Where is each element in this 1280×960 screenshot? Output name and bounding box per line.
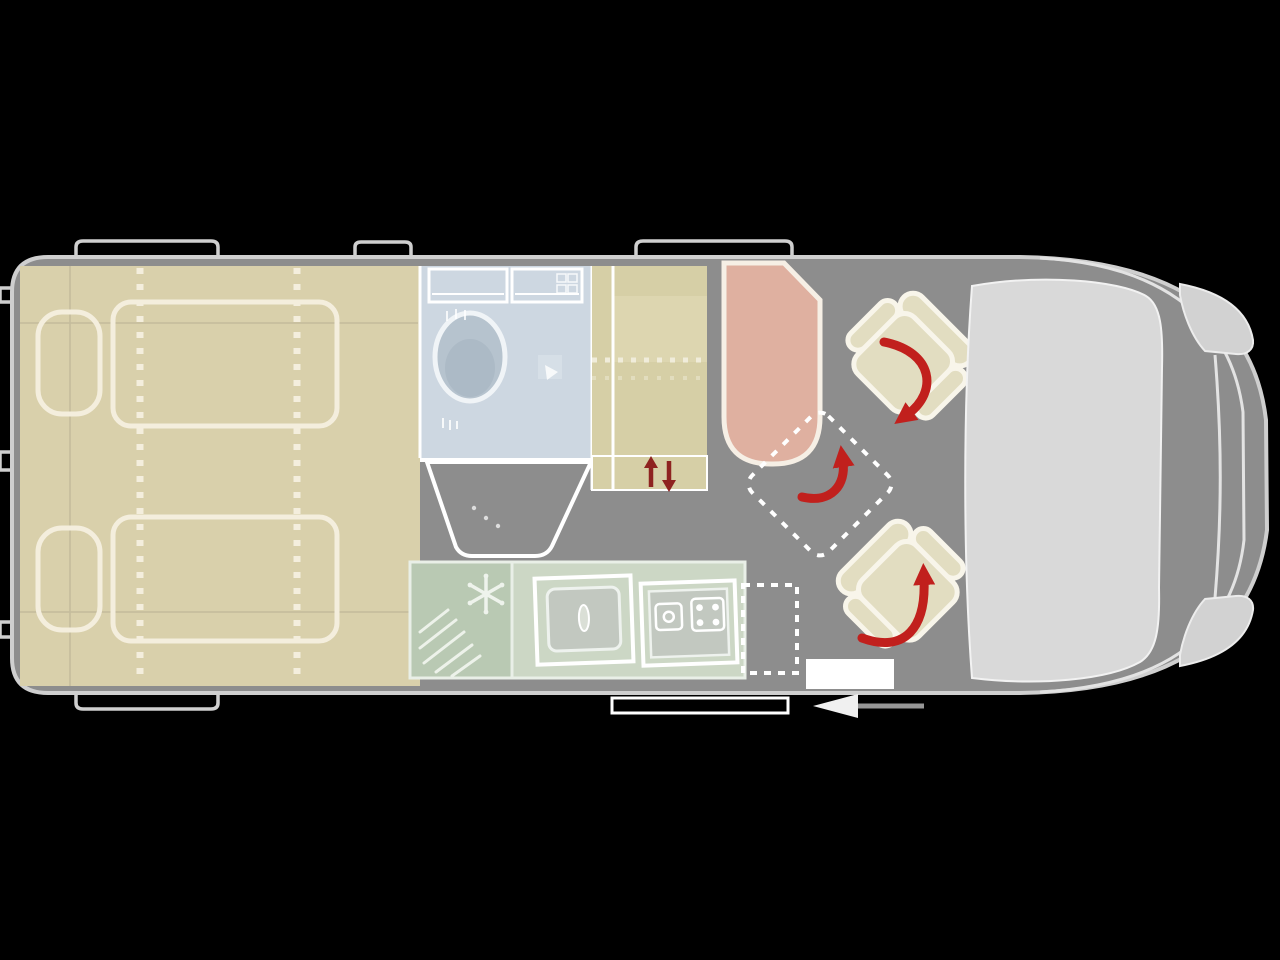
campervan-floorplan [0, 0, 1280, 960]
sliding-door-markings [612, 694, 924, 718]
toilet-seat [445, 339, 495, 397]
floorplan-canvas [0, 0, 1280, 960]
toilet [435, 309, 505, 401]
wardrobe [592, 266, 707, 492]
drain-dot [496, 524, 500, 528]
stove [641, 580, 738, 665]
rear-bedroom [20, 266, 420, 686]
kitchen [410, 562, 797, 678]
bench-seat [724, 263, 820, 464]
entry-step [806, 659, 894, 689]
bed-area [20, 266, 420, 686]
wardrobe-shelf-band [614, 296, 707, 362]
drain-dot [472, 506, 476, 510]
sliding-door-track [612, 698, 788, 713]
slide-door-arrow-icon [813, 694, 924, 718]
drain-dot [484, 516, 488, 520]
faucet [578, 605, 589, 631]
dashboard [965, 280, 1162, 682]
